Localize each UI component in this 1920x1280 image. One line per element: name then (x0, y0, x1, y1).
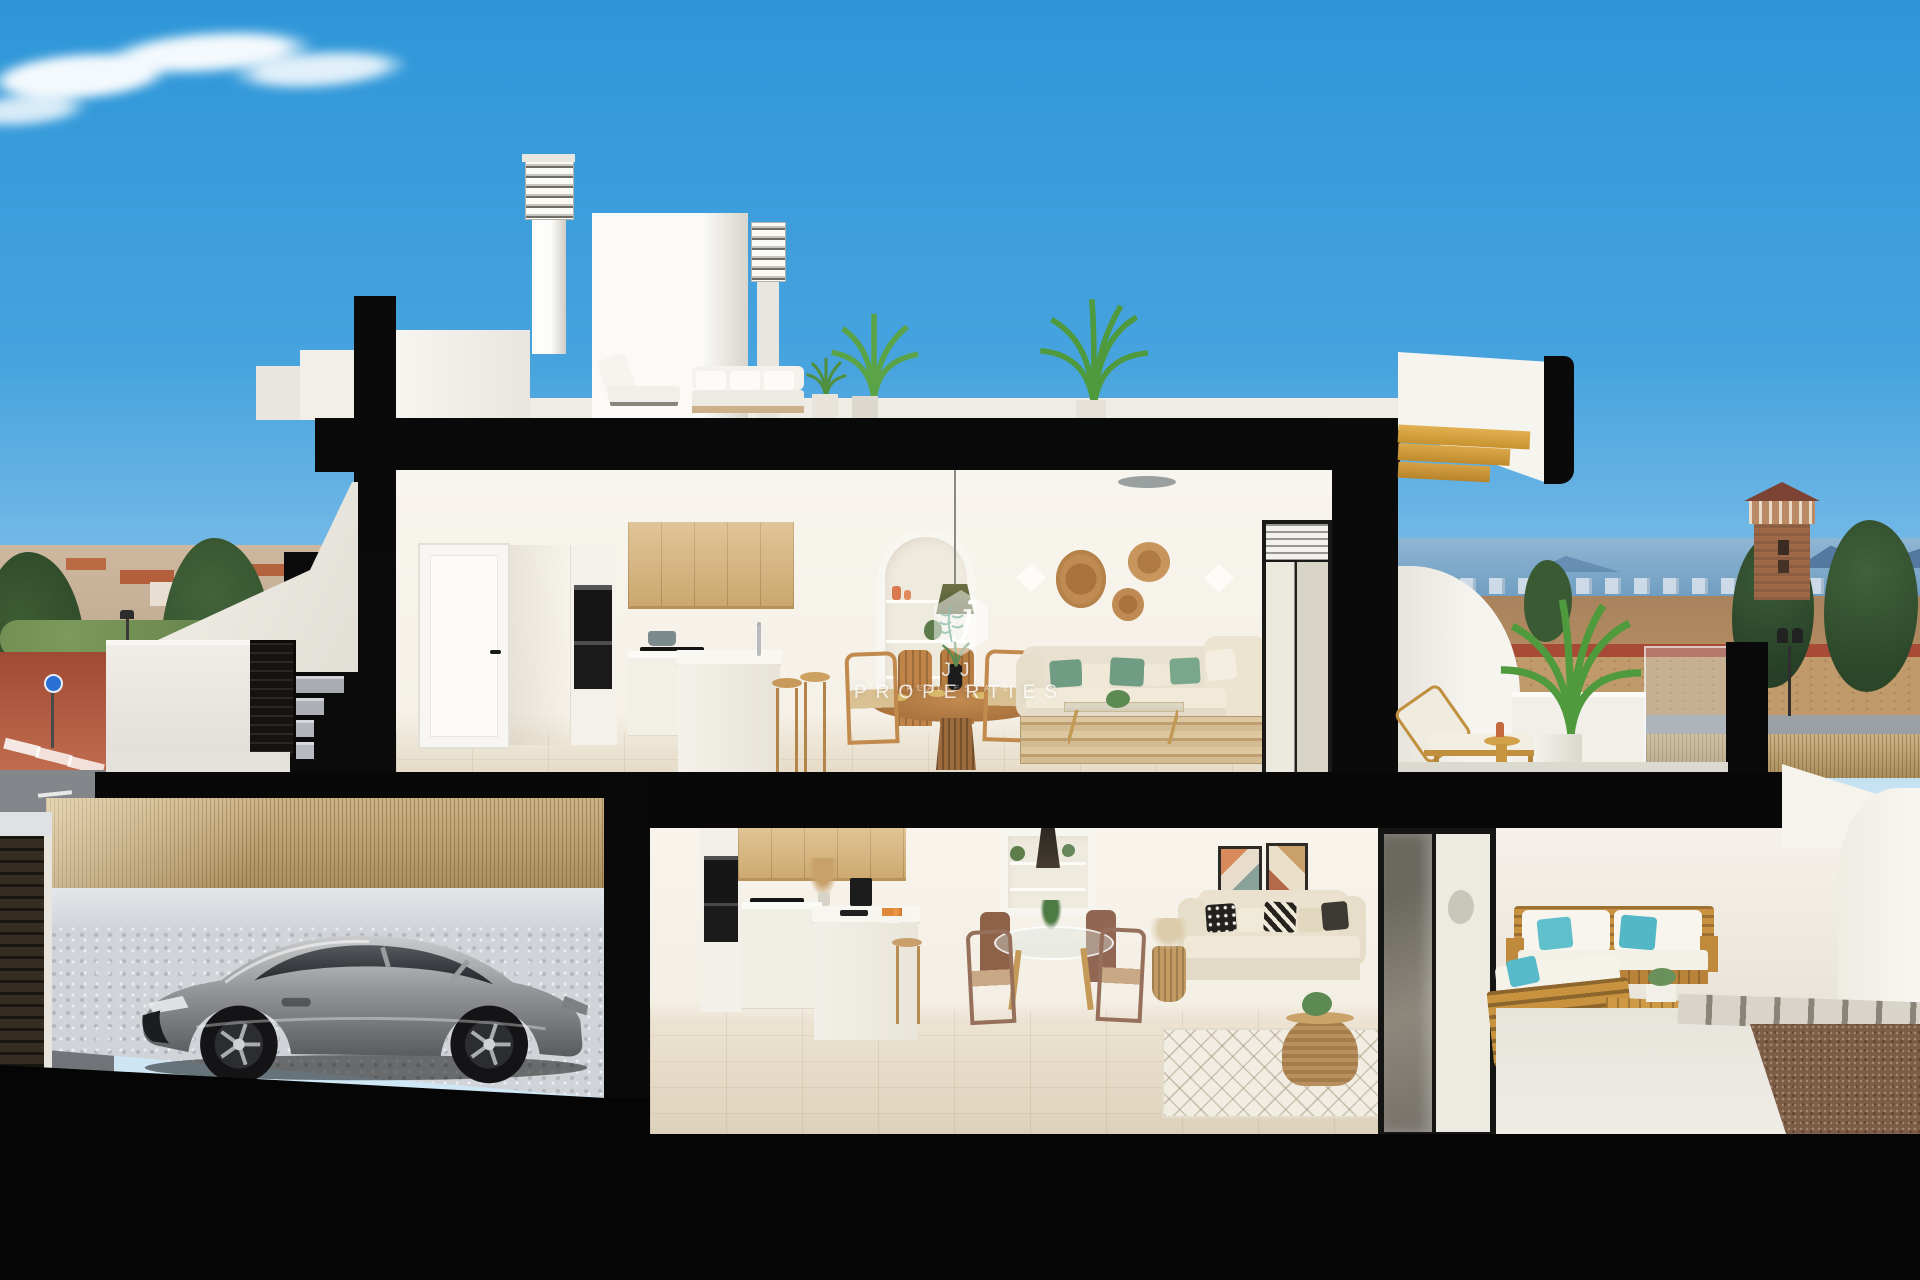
fruit-oranges (882, 908, 902, 916)
roof-parapet-left (300, 350, 358, 420)
entrance-parapet (106, 640, 250, 759)
pillow-cream (1204, 648, 1238, 682)
watermark: j JJ PROPERTIES REAL ESTATE (850, 588, 1070, 698)
roof-palm (828, 312, 920, 404)
sliding-door-dark-glass (1384, 834, 1432, 1132)
coffee-machine (850, 878, 872, 906)
chimney-louver-cap (525, 160, 574, 220)
roller-blind (1266, 524, 1328, 560)
roof-sofa-cushion (730, 371, 760, 390)
watermark-title: JJ PROPERTIES (850, 660, 1070, 704)
ground-dining-chair (966, 929, 1017, 1025)
roof-palm-tall-pot (1076, 400, 1106, 418)
pillow-green (1109, 657, 1144, 687)
chimney-shaft (532, 214, 566, 354)
table-centerpiece (1040, 900, 1062, 930)
roof-sofa-cushion (764, 371, 794, 390)
roof-side-table (920, 398, 950, 416)
artwork-frame (1266, 843, 1308, 895)
watchtower-window (1778, 540, 1789, 555)
watermark-monogram: j (960, 592, 974, 643)
bench-planter (1646, 984, 1676, 1002)
watchtower-window (1778, 560, 1789, 573)
ground-stool-legs (896, 946, 920, 1024)
roof-palm-pot (852, 396, 878, 418)
pillow-cream (1238, 908, 1264, 932)
cut-roof-slab (315, 418, 1400, 472)
ground-oven (704, 856, 738, 904)
pillow-beige (1298, 908, 1324, 932)
upper-island-top (676, 650, 782, 664)
floor-basket (1152, 946, 1186, 1002)
lamp-head-right (1777, 628, 1788, 643)
watermark-logo-hexagon: j (934, 590, 988, 656)
pendant-cord (954, 470, 956, 586)
terrace-stair-cap-black (1544, 356, 1574, 484)
ceiling-fan (1118, 476, 1176, 488)
chimney-louver-cap (751, 222, 786, 282)
island-sink (840, 910, 868, 916)
cut-ground-main (648, 1134, 1920, 1280)
lamp-head-right (1792, 628, 1803, 643)
upper-oak-cabinets (628, 522, 794, 609)
rattan-coffee-table (1282, 1016, 1358, 1086)
rattan-wall-basket (1112, 588, 1144, 621)
sun-lounger-frame (1424, 750, 1544, 756)
pillow-dark (1321, 901, 1349, 931)
cut-column-right (1332, 418, 1398, 830)
upper-hall-shadow (508, 545, 570, 745)
ground-sofa-skirt (1184, 958, 1360, 980)
garage-fence-light (46, 798, 366, 892)
pillow-patterned (1205, 903, 1237, 933)
basket-pampas (1150, 918, 1188, 950)
pillow-cream (1082, 664, 1110, 688)
upper-coffee-table-legs (1068, 710, 1178, 744)
roof-lounger-seat (608, 386, 680, 402)
lamp-head-left (120, 610, 134, 619)
roof-palm-tall (1038, 290, 1150, 416)
entrance-louver-gate (246, 640, 296, 760)
lamp-post-right (1788, 646, 1791, 716)
chimney-cap-lid (522, 154, 575, 162)
ground-oven (704, 903, 738, 942)
ground-counter (742, 902, 822, 909)
town-roof (66, 558, 106, 570)
street-sign-pole (51, 688, 54, 748)
bar-stool (800, 672, 830, 682)
upper-hall-door (418, 543, 510, 749)
ground-plate (1070, 932, 1086, 938)
pillow-cream (1144, 664, 1170, 686)
cut-divider-column (604, 772, 650, 1142)
watchtower-body (1754, 512, 1810, 600)
ground-base-cabinets (742, 909, 820, 1009)
rattan-wall-basket (1128, 542, 1170, 582)
pillow-teal (1619, 914, 1658, 950)
roof-parapet-mid (396, 330, 530, 420)
door-handle (490, 650, 501, 654)
garage-door-dark (0, 836, 44, 1070)
garage-door-frame (44, 836, 52, 1070)
upper-cooking-pot (648, 631, 676, 646)
terrace-palm (1498, 588, 1644, 746)
pillow-green (1169, 657, 1200, 685)
pillow-teal (1536, 916, 1573, 950)
upper-door-glass (1266, 562, 1328, 786)
roof-sofa-cushion (696, 371, 726, 390)
street-sign-blue (44, 674, 63, 693)
architectural-cutaway-render: j JJ PROPERTIES REAL ESTATE (0, 0, 1920, 1280)
ground-niche-shelf (1010, 888, 1086, 891)
roof-parapet-step (256, 366, 302, 420)
upper-oven (574, 585, 612, 642)
bar-stool-legs (804, 682, 826, 786)
sliding-door-light-panel (1436, 834, 1490, 1132)
watermark-subtitle: REAL ESTATE (850, 684, 1070, 693)
bar-stool (772, 678, 802, 688)
upper-faucet (757, 622, 761, 656)
upper-oven (574, 641, 612, 689)
pillow-striped (1263, 901, 1297, 933)
watchtower-gallery (1749, 499, 1815, 524)
dining-table-pedestal (936, 718, 976, 770)
sports-car (138, 898, 594, 1086)
ground-dining-chair (1096, 927, 1147, 1023)
roof-sofa-base (692, 406, 804, 413)
